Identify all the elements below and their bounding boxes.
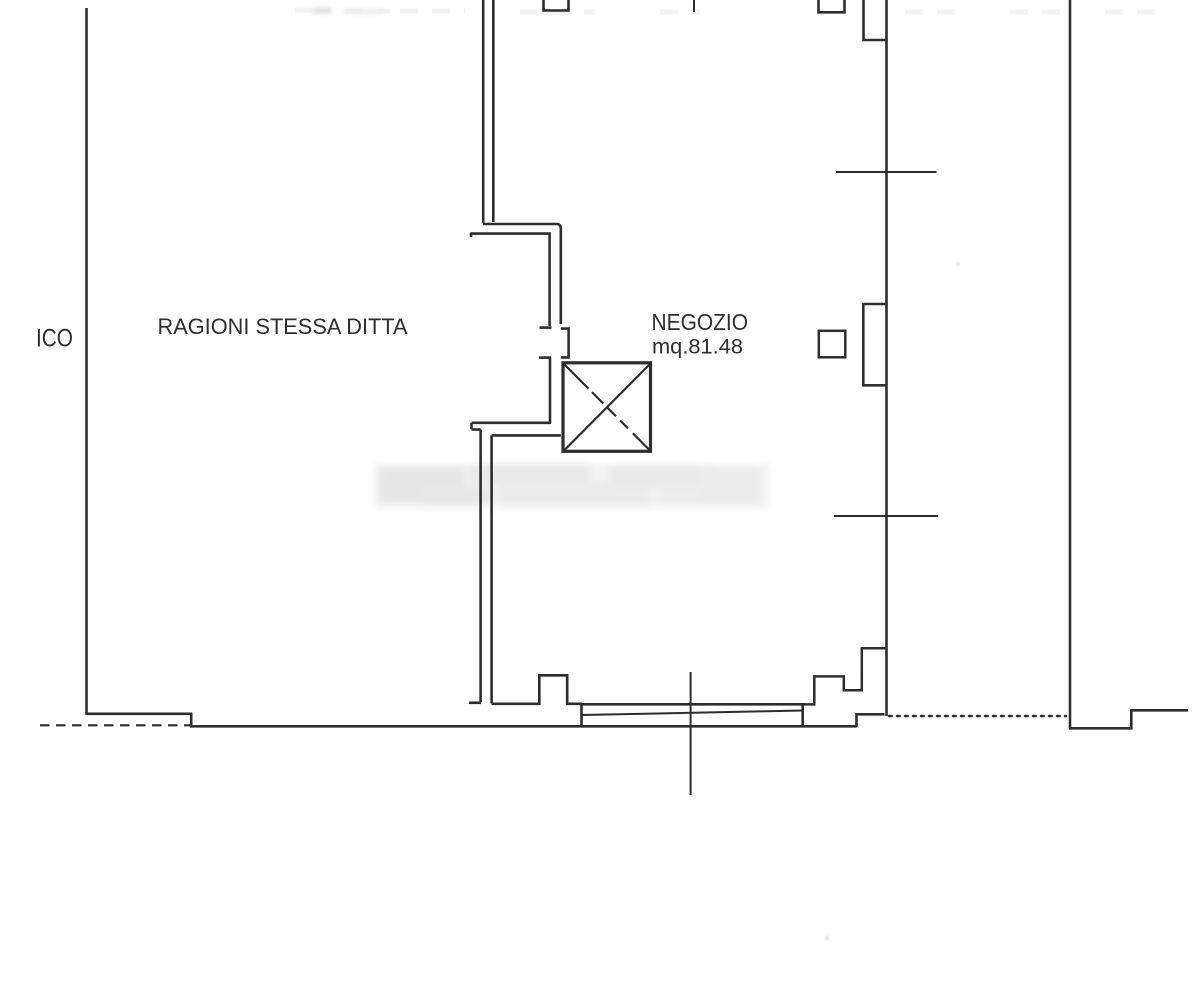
svg-text:ICO: ICO	[36, 325, 73, 353]
svg-text:RAGIONI STESSA DITTA: RAGIONI STESSA DITTA	[158, 314, 408, 339]
svg-text:NEGOZIO: NEGOZIO	[652, 309, 749, 335]
svg-text:mq.81.48: mq.81.48	[652, 335, 743, 359]
